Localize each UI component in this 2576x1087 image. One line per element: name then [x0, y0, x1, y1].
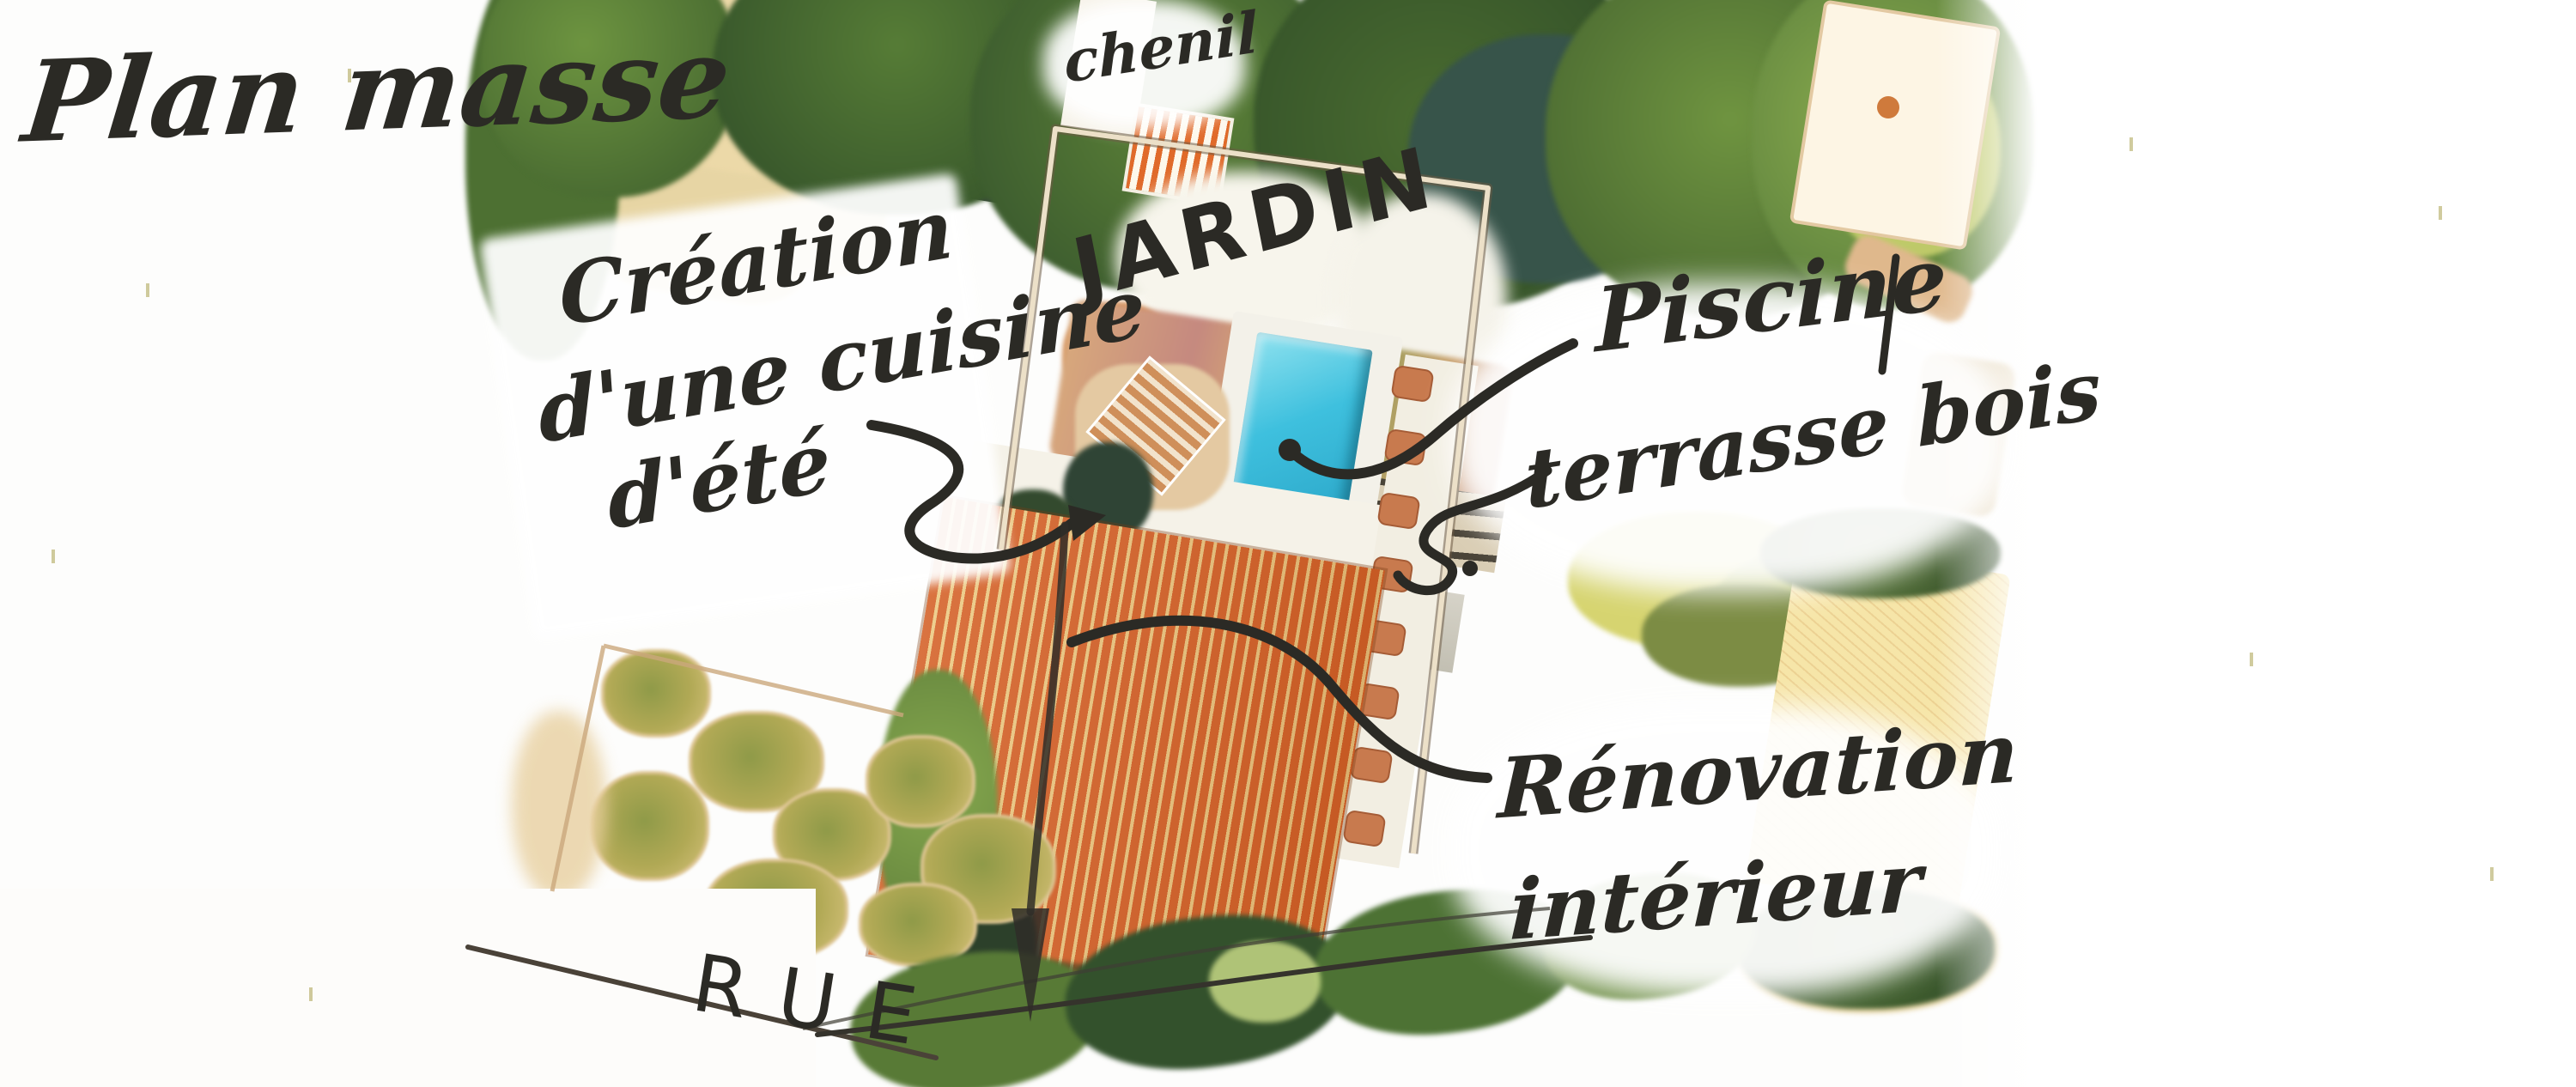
cuisine-arrow [872, 425, 1073, 559]
piscine-arrow-end [1279, 439, 1301, 461]
cuisine-arrowhead [1068, 505, 1106, 541]
courtyard-boundary [552, 646, 903, 891]
site-plan: Plan masse Création d'une cuisine d'été … [0, 0, 2576, 1087]
plan-masse-title: Plan masse [18, 21, 735, 158]
roof-pointer-line [1030, 525, 1065, 912]
terrasse-squiggle-dot [1462, 561, 1478, 576]
annotation-lines [0, 0, 2576, 1087]
